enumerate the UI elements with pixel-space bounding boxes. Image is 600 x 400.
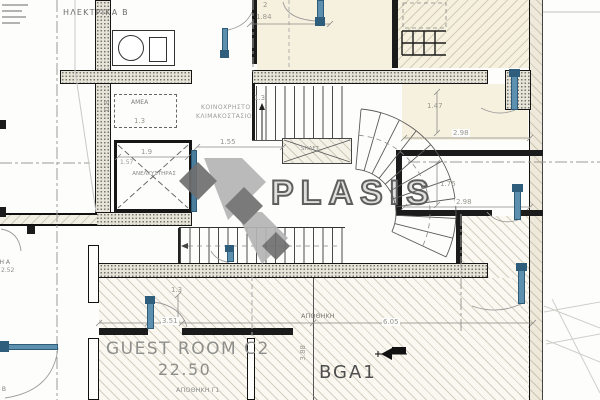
floor-plan-canvas: ΗΛΕΚΤΡΙΚΑ Β ΑΜΕΑ ΚΟΙΝΟΧΡΗΣΤΟ ΚΛΙΜΑΚΟΣΤΑΣ… xyxy=(0,0,600,400)
plasis-watermark-text: PLASIS xyxy=(271,174,436,213)
